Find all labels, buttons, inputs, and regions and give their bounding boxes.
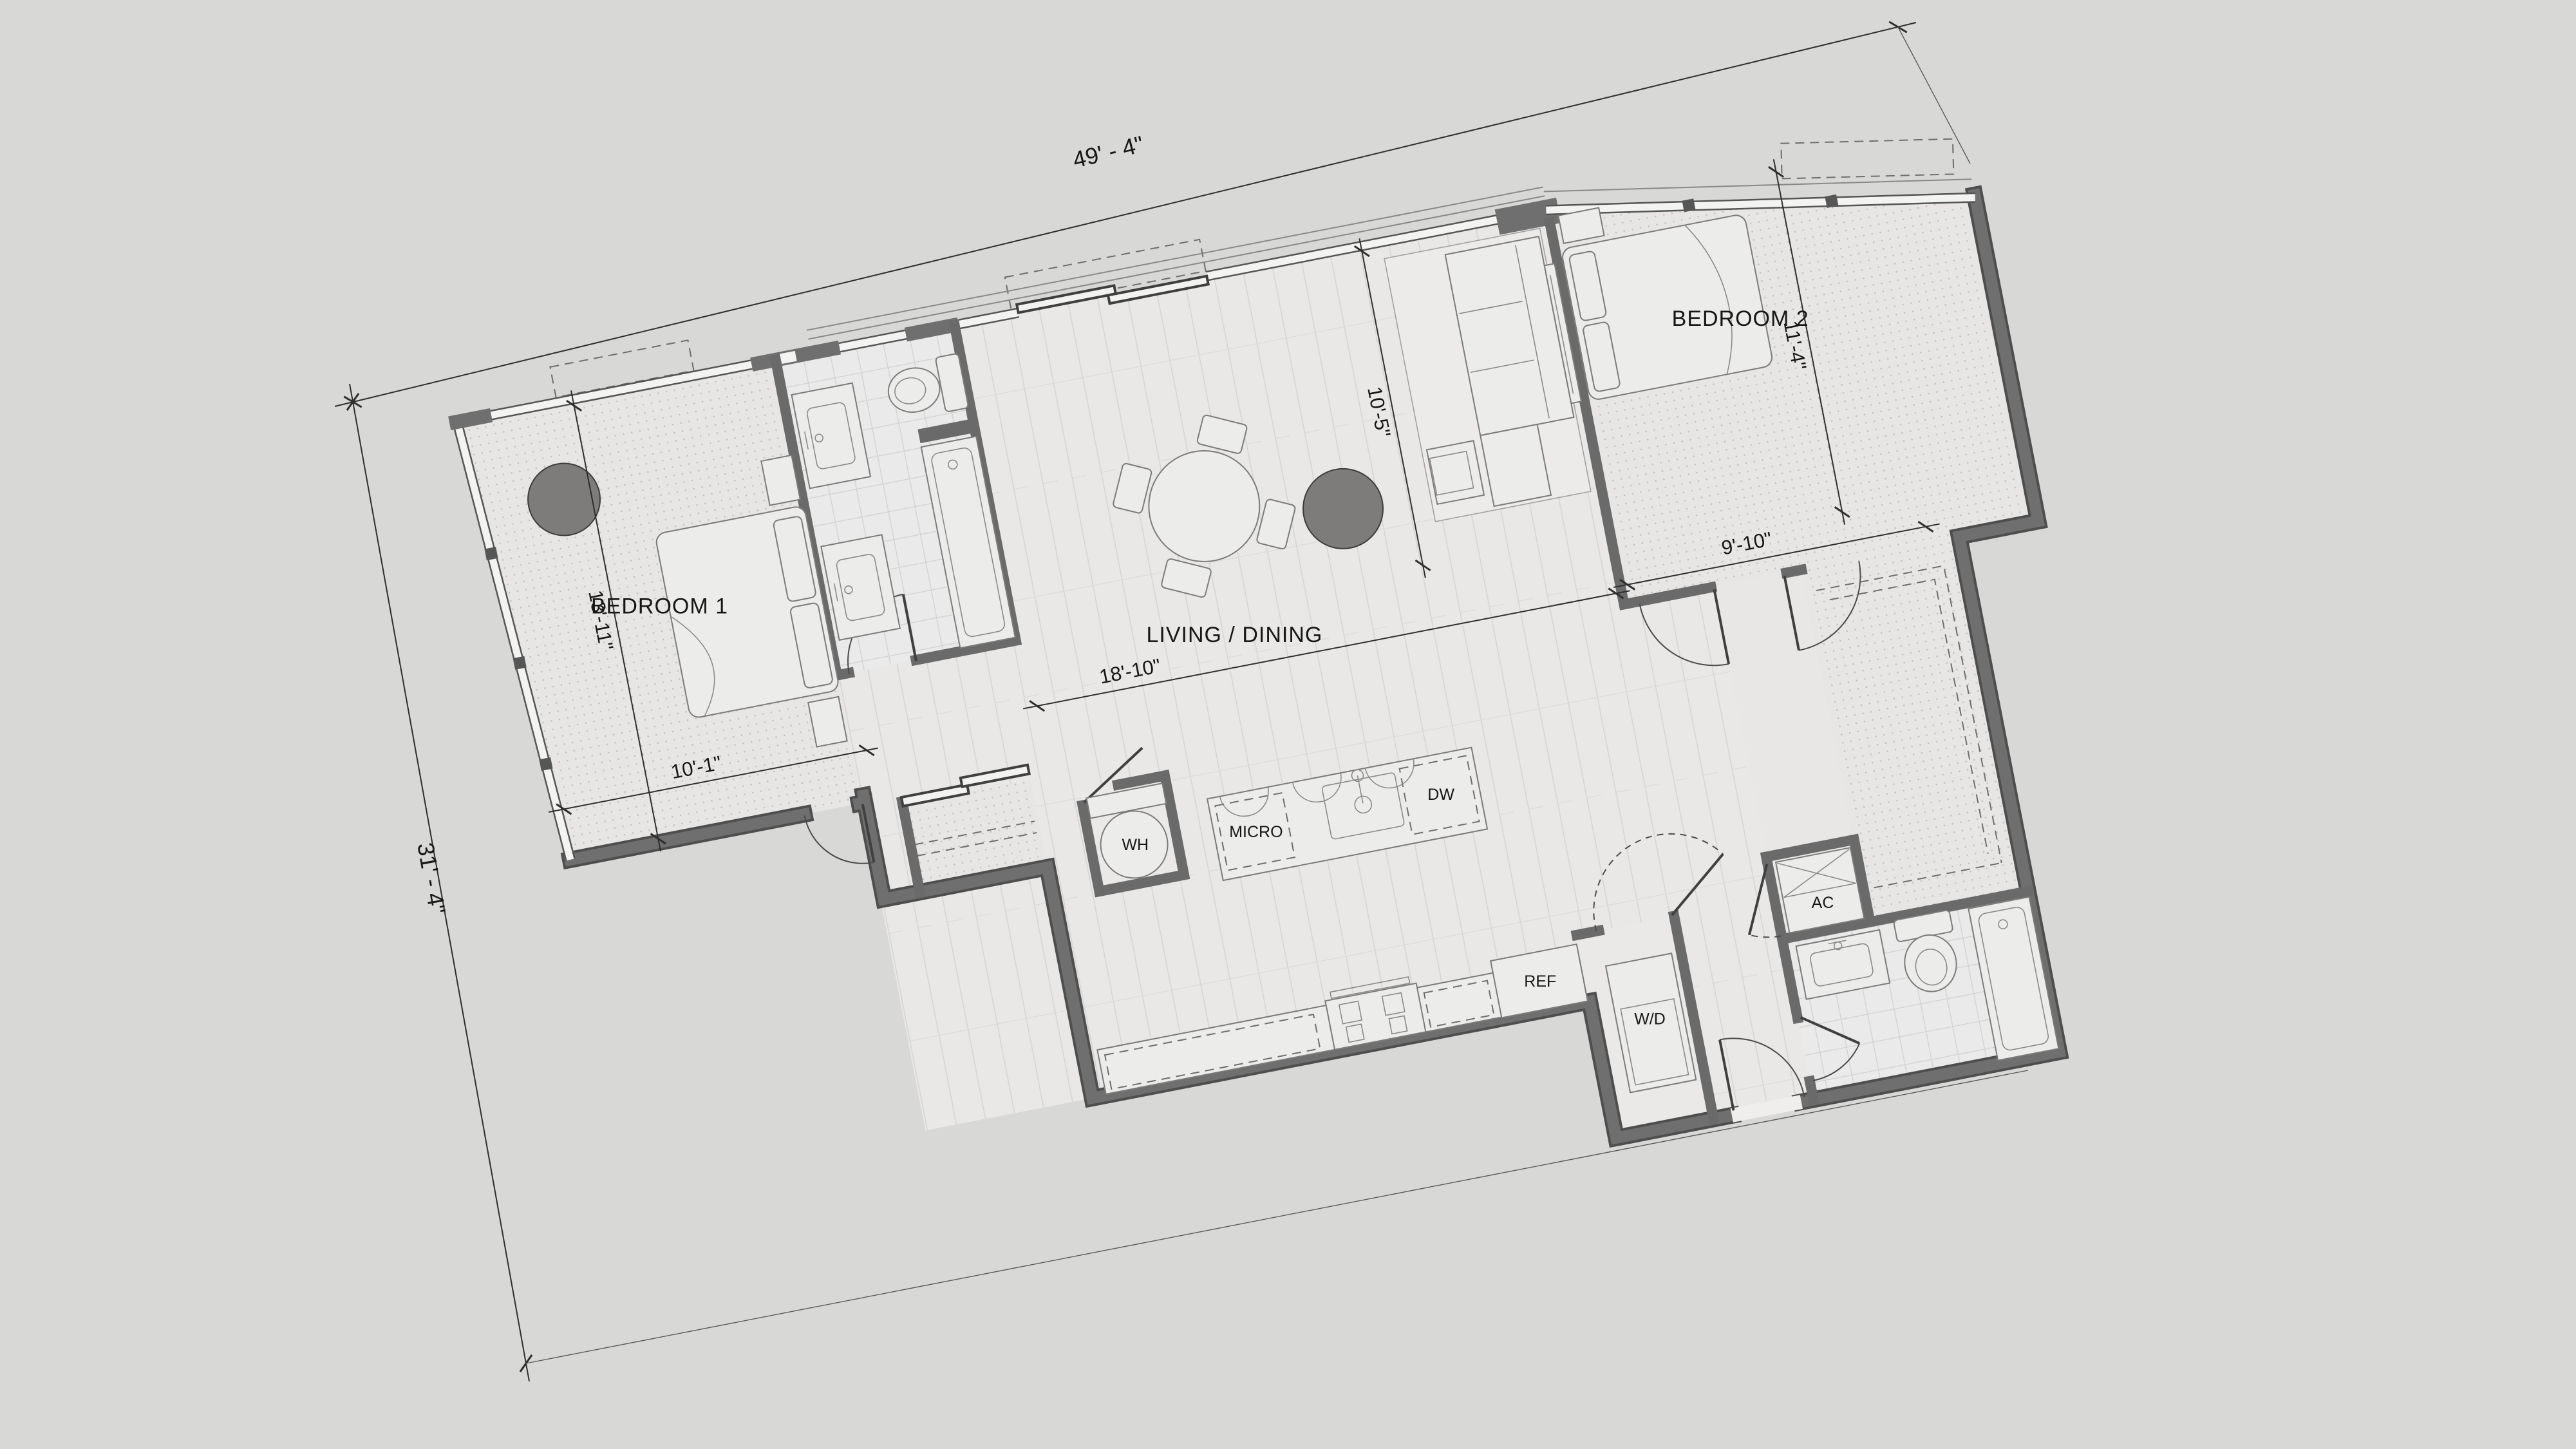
wh-label: WH (1122, 836, 1149, 854)
ac-label: AC (1812, 894, 1834, 912)
floors (457, 129, 2138, 1329)
floor-plan-page: { "plan": { "type": "apartment-floor-pla… (0, 0, 2576, 1449)
dw-label: DW (1427, 786, 1454, 804)
wd-label: W/D (1634, 1010, 1666, 1028)
floor-plan-canvas: 13'-11" 10'-1" 18'-10" 10'-5" (0, 0, 2576, 1449)
bedroom2-label: BEDROOM 2 (1672, 307, 1809, 331)
bevel-mullion-1 (1682, 198, 1695, 212)
left-window-mullion-1 (484, 547, 498, 560)
coffee-table (1427, 440, 1484, 504)
bevel-mullion-2 (1825, 194, 1838, 208)
overall-width-text: 49' - 4" (1070, 131, 1146, 173)
bedroom1-label: BEDROOM 1 (591, 594, 728, 618)
unit-plan: 13'-11" 10'-1" 18'-10" 10'-5" (442, 93, 2139, 1338)
ac-closet (1776, 848, 1864, 933)
left-window-mullion-3 (539, 757, 552, 771)
left-window-mullion-2 (513, 656, 527, 670)
overall-height-text: 31' - 4" (412, 840, 451, 916)
living-label: LIVING / DINING (1147, 623, 1323, 647)
ref-label: REF (1524, 972, 1556, 990)
canopy-dashed-bedroom2 (1775, 111, 1959, 207)
micro-label: MICRO (1229, 823, 1283, 841)
